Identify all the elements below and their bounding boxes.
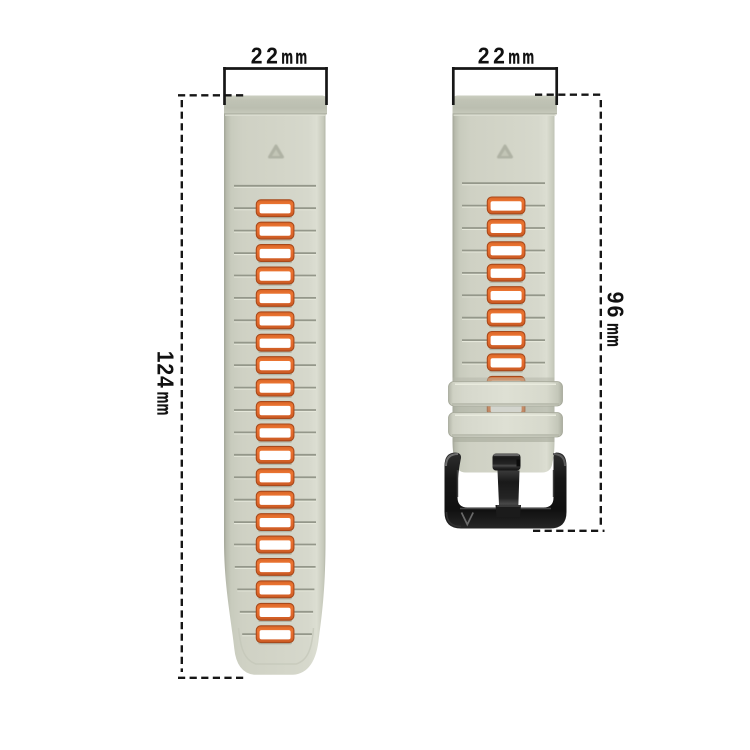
svg-text:mm: mm — [153, 392, 175, 416]
svg-text:124: 124 — [152, 351, 178, 389]
svg-text:mm: mm — [603, 323, 625, 347]
